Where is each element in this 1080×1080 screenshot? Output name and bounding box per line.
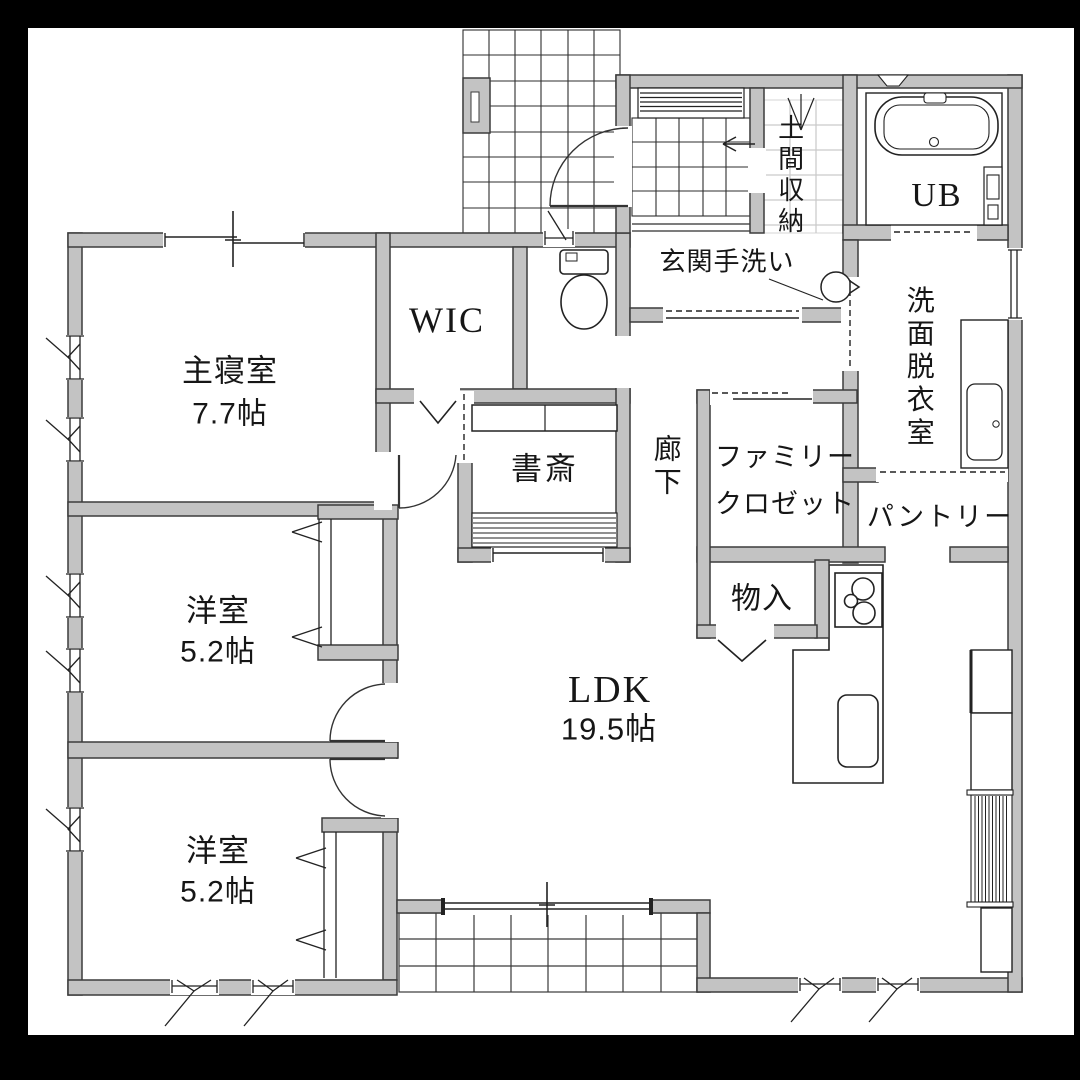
room-label-bedroom-b: 洋室 bbox=[186, 836, 250, 869]
room-label-entrance-storage: 土間収納 bbox=[775, 114, 802, 238]
floor-plan: 主寝室 7.7帖 WIC 書斎 洋室 5.2帖 洋室 5.2帖 LDK 19.5… bbox=[0, 0, 1080, 1080]
room-label-washroom: 洗面脱衣室 bbox=[904, 286, 933, 451]
room-label-master-bedroom: 主寝室 bbox=[182, 356, 278, 389]
toilet-fixture bbox=[560, 250, 608, 329]
room-label-storage: 物入 bbox=[731, 583, 793, 615]
kitchen-island bbox=[793, 565, 883, 783]
porch-pillar-slot bbox=[471, 92, 479, 122]
room-size-bedroom-b: 5.2帖 bbox=[180, 876, 256, 908]
cupboard bbox=[971, 650, 1012, 790]
room-size-bedroom-a: 5.2帖 bbox=[180, 636, 256, 668]
louver-screen bbox=[967, 790, 1013, 907]
room-label-ldk: LDK bbox=[568, 671, 652, 711]
corner-counter bbox=[981, 908, 1012, 972]
room-size-master-bedroom: 7.7帖 bbox=[192, 398, 268, 430]
handwash-basin bbox=[769, 272, 859, 302]
room-label-hallway: 廊下 bbox=[651, 434, 680, 500]
room-label-family-closet-line2: クロゼット bbox=[715, 490, 855, 518]
room-label-bedroom-a: 洋室 bbox=[186, 596, 250, 629]
room-label-wic: WIC bbox=[409, 302, 485, 340]
vanity-counter bbox=[961, 320, 1008, 468]
genkan-tiles bbox=[632, 118, 750, 231]
room-label-entrance-handwash: 玄関手洗い bbox=[659, 248, 794, 275]
floor-plan-drawing bbox=[0, 0, 1080, 1080]
room-label-study: 書斎 bbox=[511, 454, 579, 487]
room-label-unit-bath: UB bbox=[911, 178, 962, 214]
room-label-pantry: パントリー bbox=[867, 503, 1013, 531]
wood-deck bbox=[399, 913, 698, 992]
kitchen-sink bbox=[838, 695, 878, 767]
room-label-family-closet-line1: ファミリー bbox=[715, 443, 855, 471]
room-size-ldk: 19.5帖 bbox=[561, 714, 657, 747]
shoe-cabinet bbox=[638, 88, 744, 118]
stove-burner bbox=[853, 602, 875, 624]
